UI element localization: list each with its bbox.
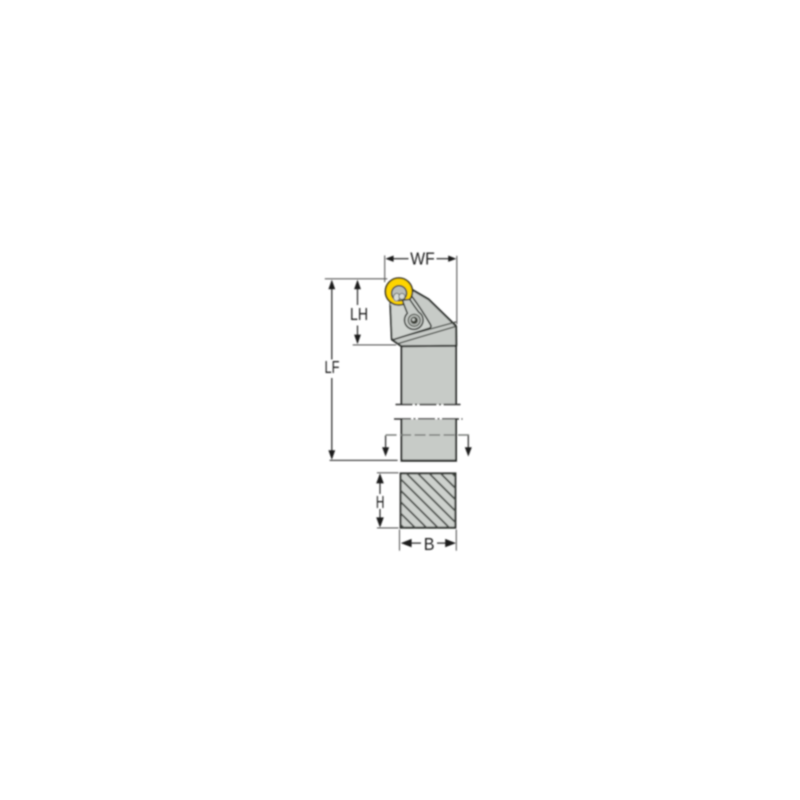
svg-text:LF: LF — [325, 357, 340, 377]
svg-text:LH: LH — [350, 304, 368, 324]
svg-text:H: H — [376, 492, 385, 512]
svg-text:B: B — [424, 534, 435, 554]
svg-text:WF: WF — [410, 248, 435, 268]
